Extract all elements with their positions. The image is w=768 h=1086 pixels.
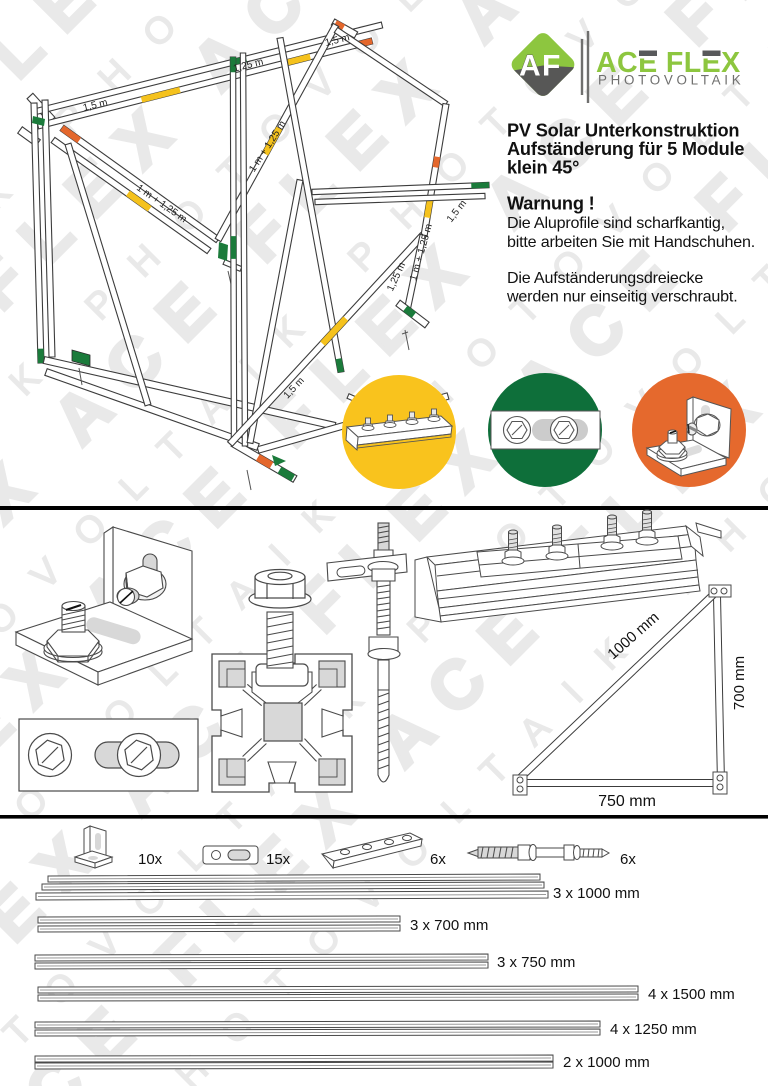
svg-text:10x: 10x — [138, 851, 163, 868]
svg-text:4 x 1500 mm: 4 x 1500 mm — [648, 986, 735, 1003]
svg-text:werden nur einseitig verschrau: werden nur einseitig verschraubt. — [506, 288, 737, 306]
svg-text:PHOTOVOLTAIK: PHOTOVOLTAIK — [598, 73, 744, 88]
svg-text:Aufständerung für 5 Module: Aufständerung für 5 Module — [507, 139, 744, 159]
svg-text:6x: 6x — [430, 851, 446, 868]
svg-text:3 x 750 mm: 3 x 750 mm — [497, 954, 575, 971]
svg-text:klein 45°: klein 45° — [507, 158, 579, 178]
svg-text:750 mm: 750 mm — [598, 793, 656, 810]
svg-text:PV Solar Unterkonstruktion: PV Solar Unterkonstruktion — [507, 121, 739, 141]
svg-text:A: A — [519, 50, 541, 83]
svg-text:3 x 700 mm: 3 x 700 mm — [410, 917, 488, 934]
svg-text:3 x 1000 mm: 3 x 1000 mm — [553, 885, 640, 902]
svg-text:Die Aufständerungsdreiecke: Die Aufständerungsdreiecke — [507, 269, 703, 287]
svg-text:2 x 1000 mm: 2 x 1000 mm — [563, 1054, 650, 1071]
svg-text:4 x 1250 mm: 4 x 1250 mm — [610, 1021, 697, 1038]
svg-text:Warnung !: Warnung ! — [507, 194, 594, 214]
svg-text:15x: 15x — [266, 851, 291, 868]
svg-text:700 mm: 700 mm — [731, 656, 748, 710]
svg-text:Die Aluprofile sind scharfkant: Die Aluprofile sind scharfkantig, — [507, 214, 725, 232]
svg-text:bitte arbeiten Sie mit Handsch: bitte arbeiten Sie mit Handschuhen. — [507, 233, 755, 251]
svg-text:F: F — [542, 50, 560, 83]
svg-text:6x: 6x — [620, 851, 636, 868]
